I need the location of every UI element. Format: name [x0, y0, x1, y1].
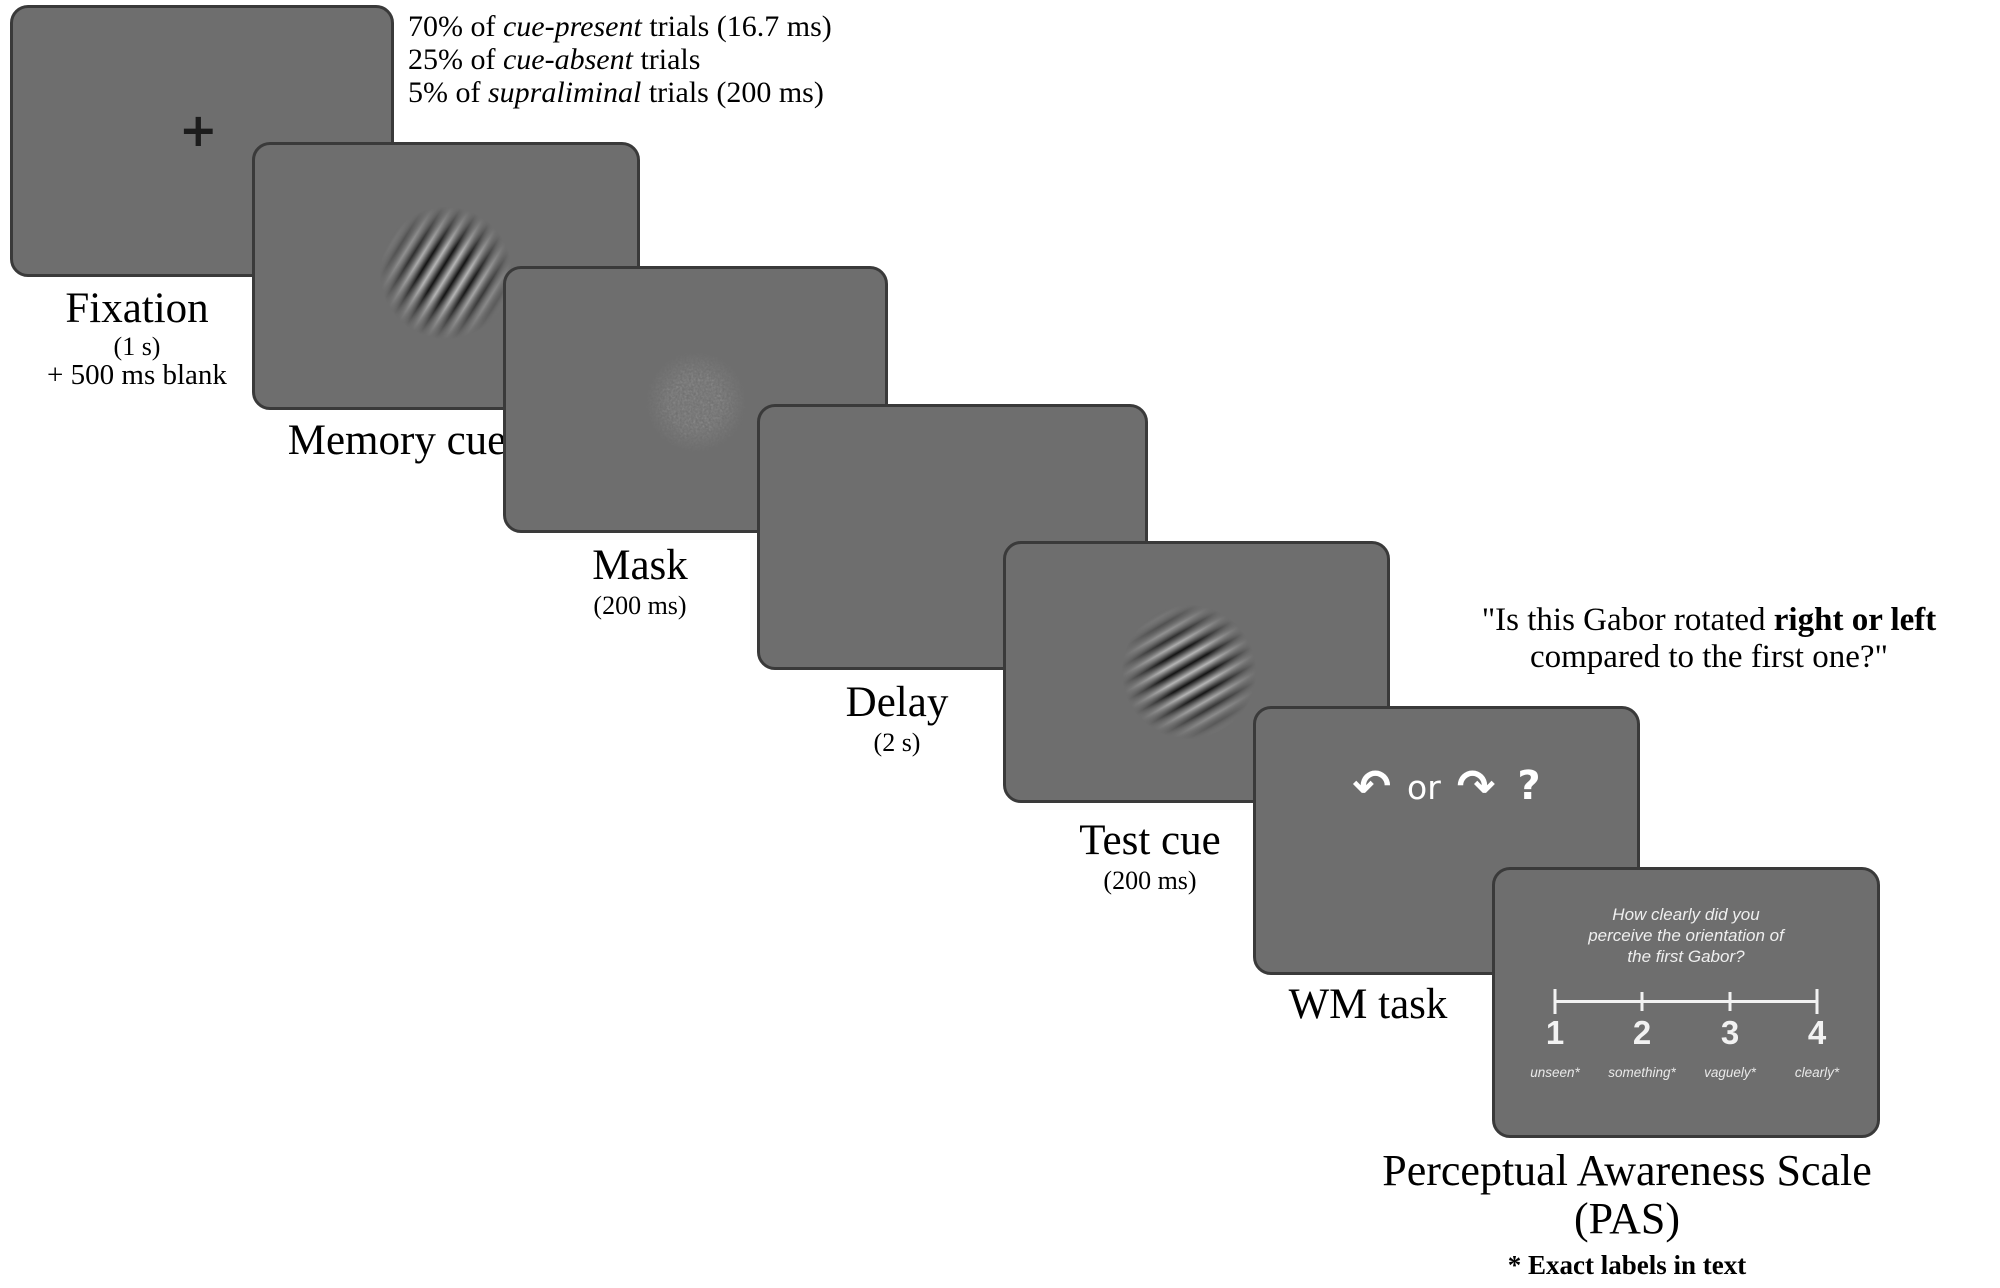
caption-delay: Delay	[846, 680, 949, 725]
pas-number-2: 2	[1633, 1016, 1651, 1049]
noise-patch-icon	[625, 331, 767, 473]
pas-label-vaguely: vaguely*	[1704, 1066, 1756, 1080]
test-question-line1: "Is this Gabor rotated right or left	[1420, 602, 1998, 639]
trial-proportions-line1: 70% of cue-present trials (16.7 ms)	[408, 10, 832, 43]
caption-fixation-duration: (1 s)	[114, 333, 161, 360]
caption-wm-task: WM task	[1289, 982, 1448, 1027]
rotate-right-icon: ↷	[1457, 763, 1496, 809]
caption-pas-subtitle: (PAS)	[1574, 1196, 1680, 1242]
screen-pas: How clearly did you perceive the orienta…	[1492, 867, 1880, 1138]
pas-tick-2	[1641, 992, 1644, 1011]
rotate-left-icon: ↶	[1352, 763, 1391, 809]
caption-fixation-extra: + 500 ms blank	[47, 360, 227, 390]
caption-pas-footnote: * Exact labels in text	[1508, 1250, 1746, 1281]
caption-delay-duration: (2 s)	[874, 729, 921, 756]
pas-question-line1: How clearly did you	[1495, 904, 1877, 925]
gabor-patch-memory-icon	[378, 205, 514, 341]
pas-scale-ruler	[1555, 989, 1817, 1015]
pas-tick-4	[1816, 989, 1819, 1014]
figure-trial-sequence: +	[0, 0, 2000, 1288]
pas-number-1: 1	[1546, 1016, 1564, 1049]
wm-response-options: ↶ or ↷ ?	[1256, 763, 1637, 809]
pas-question: How clearly did you perceive the orienta…	[1495, 904, 1877, 967]
trial-proportions-note: 70% of cue-present trials (16.7 ms) 25% …	[408, 10, 832, 109]
pas-question-line2: perceive the orientation of	[1495, 925, 1877, 946]
caption-mask-duration: (200 ms)	[593, 592, 686, 619]
test-question-line2: compared to the first one?"	[1420, 639, 1998, 676]
pas-tick-1	[1554, 989, 1557, 1014]
pas-number-3: 3	[1721, 1016, 1739, 1049]
caption-pas-title: Perceptual Awareness Scale	[1382, 1148, 1872, 1194]
pas-question-line3: the first Gabor?	[1495, 946, 1877, 967]
fixation-cross-icon: +	[179, 107, 218, 153]
test-question-note: "Is this Gabor rotated right or left com…	[1420, 602, 1998, 676]
gabor-patch-test-icon	[1120, 603, 1258, 741]
trial-proportions-line2: 25% of cue-absent trials	[408, 43, 832, 76]
pas-scale-line	[1555, 1000, 1817, 1003]
caption-fixation: Fixation	[65, 286, 208, 331]
pas-number-4: 4	[1808, 1016, 1826, 1049]
caption-memory-cue: Memory cue	[277, 418, 517, 463]
caption-test-cue: Test cue	[1079, 818, 1220, 863]
trial-proportions-line3: 5% of supraliminal trials (200 ms)	[408, 76, 832, 109]
caption-test-cue-duration: (200 ms)	[1103, 867, 1196, 894]
caption-mask: Mask	[592, 543, 688, 588]
wm-question-mark: ?	[1511, 766, 1540, 806]
pas-tick-3	[1728, 992, 1731, 1011]
pas-label-clearly: clearly*	[1795, 1066, 1839, 1080]
pas-label-something: something*	[1608, 1066, 1676, 1080]
pas-label-unseen: unseen*	[1530, 1066, 1580, 1080]
wm-or-label: or	[1407, 769, 1441, 804]
